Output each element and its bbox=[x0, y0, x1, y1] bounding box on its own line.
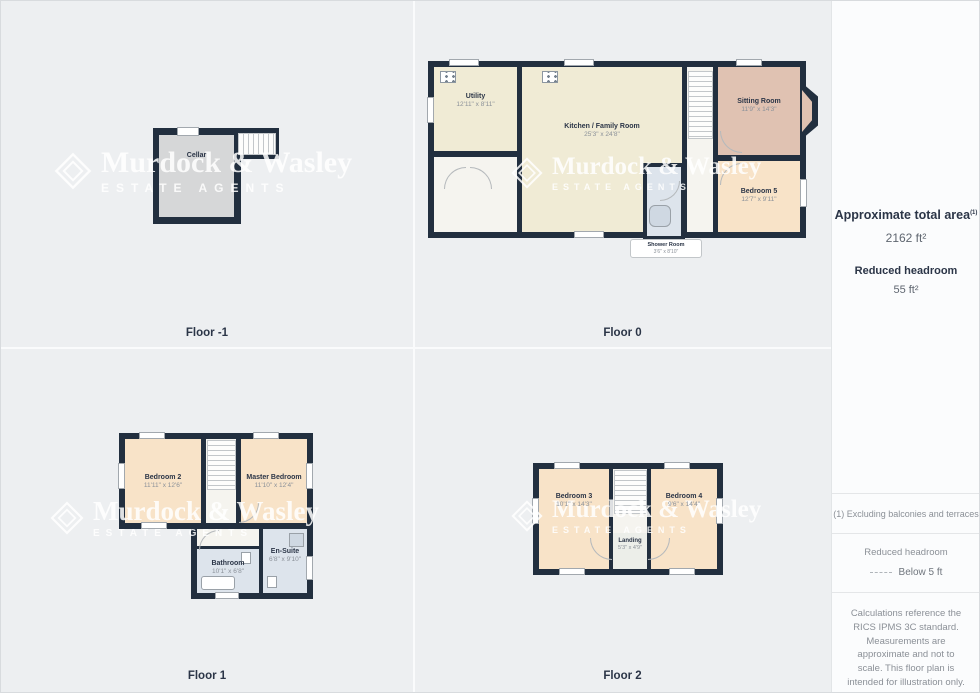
window bbox=[449, 59, 479, 66]
floorplan-page: Cellar Murdock & Wasley ESTATE AGENTS Fl… bbox=[0, 0, 980, 693]
floor-0-label: Floor 0 bbox=[414, 327, 831, 339]
quadrant-floor-2: Bedroom 3 10'1" x 14'3" Bedroom 4 9'6" x… bbox=[414, 348, 831, 692]
legend-card: Reduced headroom Below 5 ft bbox=[832, 534, 980, 593]
quadrant-floor-0: Utility 12'11" x 8'11" Kitchen / Family … bbox=[414, 1, 831, 347]
floor-1-label: Floor 1 bbox=[1, 670, 413, 682]
shower-room-callout: Shower Room 3'6" x 8'10" bbox=[630, 239, 702, 258]
window bbox=[554, 462, 580, 469]
shower-tray bbox=[289, 533, 304, 547]
headroom-heading: Reduced headroom bbox=[832, 265, 980, 277]
dashed-line-icon bbox=[870, 572, 892, 573]
toilet bbox=[241, 552, 251, 564]
room-dims: 3'6" x 8'10" bbox=[635, 249, 697, 255]
window bbox=[664, 462, 690, 469]
disclaimer-text: Calculations reference the RICS IPMS 3C … bbox=[845, 607, 967, 690]
legend-item: Below 5 ft bbox=[899, 567, 943, 578]
window bbox=[736, 59, 762, 66]
window bbox=[564, 59, 594, 66]
window bbox=[559, 568, 585, 575]
hob-icon bbox=[440, 71, 456, 83]
window bbox=[306, 556, 313, 580]
window bbox=[306, 463, 313, 489]
window bbox=[215, 592, 239, 599]
footnote-marker: (1) bbox=[970, 210, 977, 216]
quadrant-floor-1: Bedroom 2 11'11" x 12'6" Master Bedroom … bbox=[1, 348, 413, 692]
total-area-card: Approximate total area(1) 2162 ft² Reduc… bbox=[832, 1, 980, 494]
window bbox=[716, 498, 723, 524]
total-area-heading: Approximate total area(1) bbox=[832, 208, 980, 222]
room-cellar bbox=[159, 135, 234, 217]
shower-tray bbox=[649, 205, 671, 227]
floor-minus1-label: Floor -1 bbox=[1, 327, 413, 339]
total-area-value: 2162 ft² bbox=[832, 231, 980, 245]
cellar-door-gap bbox=[177, 127, 199, 136]
floor-2-label: Floor 2 bbox=[414, 670, 831, 682]
cellar-stairs bbox=[238, 133, 276, 155]
floor0-stairs bbox=[688, 71, 713, 139]
window bbox=[669, 568, 695, 575]
room-shower bbox=[643, 163, 685, 240]
window bbox=[574, 231, 604, 238]
footnote-card: (1) Excluding balconies and terraces bbox=[832, 494, 980, 534]
quadrant-floor-minus1: Cellar Murdock & Wasley ESTATE AGENTS Fl… bbox=[1, 1, 413, 347]
hob-icon bbox=[542, 71, 558, 83]
floor1-stairs bbox=[207, 440, 236, 490]
room-bedroom2 bbox=[125, 439, 201, 523]
window bbox=[118, 463, 125, 489]
window bbox=[253, 432, 279, 439]
info-sidebar: Approximate total area(1) 2162 ft² Reduc… bbox=[831, 1, 980, 692]
window bbox=[427, 97, 434, 123]
window bbox=[532, 498, 539, 524]
window bbox=[800, 179, 807, 207]
bathtub bbox=[201, 576, 235, 590]
window bbox=[139, 432, 165, 439]
headroom-value: 55 ft² bbox=[832, 284, 980, 296]
total-area-label: Approximate total area bbox=[835, 208, 970, 222]
footnote-text: (1) Excluding balconies and terraces bbox=[833, 509, 979, 519]
legend-title: Reduced headroom bbox=[832, 547, 980, 558]
room-landing bbox=[613, 533, 647, 569]
toilet bbox=[267, 576, 277, 588]
window bbox=[141, 522, 167, 529]
disclaimer-card: Calculations reference the RICS IPMS 3C … bbox=[832, 593, 980, 692]
brand-diamond-icon bbox=[49, 500, 85, 536]
room-name: Shower Room bbox=[635, 242, 697, 248]
brand-diamond-icon bbox=[53, 151, 93, 191]
floor2-stairs bbox=[614, 470, 647, 514]
